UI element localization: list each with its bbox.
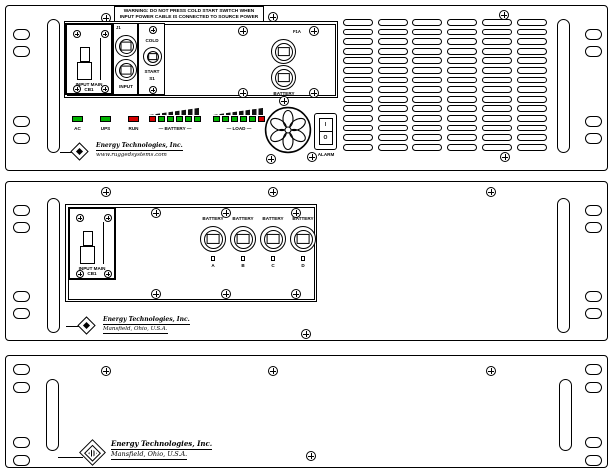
vent-slot — [378, 125, 408, 132]
vent-slot — [517, 144, 547, 151]
vent-slot — [412, 48, 442, 55]
vent-slot — [482, 115, 512, 122]
vent-slot — [517, 115, 547, 122]
eti-logo-icon — [77, 316, 95, 334]
vent-slot — [482, 96, 512, 103]
eti-logo-icon — [79, 439, 106, 466]
logo-company: Energy Technologies, Inc. — [103, 316, 190, 325]
mounting-slot — [13, 222, 30, 233]
cold-start-ref: S1 — [149, 76, 155, 81]
load-led — [231, 116, 238, 122]
vent-slot — [517, 105, 547, 112]
mounting-slot — [13, 29, 30, 40]
cold-start-word2: START — [145, 69, 160, 74]
screw-icon — [268, 366, 278, 376]
screw-icon — [268, 187, 278, 197]
vent-slot — [482, 67, 512, 74]
vent-slot — [343, 19, 373, 26]
cold-start-button[interactable] — [143, 47, 162, 66]
vent-slot — [447, 77, 477, 84]
load-led — [222, 116, 229, 122]
mounting-slot — [13, 364, 30, 375]
mounting-slot — [585, 29, 602, 40]
battery-label: BATTERY — [232, 216, 253, 221]
vent-slot — [378, 57, 408, 64]
vent-slot — [343, 38, 373, 45]
vent-slot — [447, 19, 477, 26]
vent-slot — [343, 96, 373, 103]
vent-slot — [412, 144, 442, 151]
vent-slot — [343, 86, 373, 93]
vent-slot — [482, 38, 512, 45]
rack-panel-bottom: Energy Technologies, Inc. Mansfield, Ohi… — [5, 355, 608, 468]
vent-slot — [517, 57, 547, 64]
battery-connector-icon — [200, 226, 226, 252]
vent-slot — [517, 29, 547, 36]
load-scale-icon — [213, 107, 265, 115]
mounting-slot — [585, 291, 602, 302]
mounting-slot — [585, 382, 602, 393]
screw-icon — [76, 214, 84, 222]
connector-ref: F1A — [293, 30, 301, 35]
screw-icon — [266, 154, 276, 164]
vent-slot — [378, 19, 408, 26]
battery-led — [149, 116, 156, 122]
battery-id: C — [271, 263, 274, 268]
vent-slot — [447, 86, 477, 93]
vent-slot — [412, 38, 442, 45]
led-label-run: RUN — [129, 126, 139, 131]
breaker-label: INPUT MAIN CB1 — [70, 266, 114, 276]
screw-icon — [238, 26, 248, 36]
vent-slot — [517, 38, 547, 45]
breaker-toggle-body[interactable] — [80, 246, 95, 264]
vent-slot — [482, 48, 512, 55]
mounting-slot — [585, 116, 602, 127]
mounting-slot — [585, 308, 602, 319]
breaker-toggle[interactable] — [83, 231, 93, 246]
vent-slot — [378, 105, 408, 112]
vent-slot — [447, 38, 477, 45]
vent-slot — [343, 134, 373, 141]
mounting-slot — [585, 222, 602, 233]
vent-slot — [378, 134, 408, 141]
vent-grille — [343, 19, 551, 153]
connector-pin-icon — [271, 256, 275, 261]
vent-slot — [412, 96, 442, 103]
screw-icon — [486, 366, 496, 376]
vent-slot — [378, 67, 408, 74]
vent-slot — [447, 67, 477, 74]
battery-id: D — [301, 263, 304, 268]
load-led — [249, 116, 256, 122]
input-connector-icon — [115, 59, 137, 81]
screw-icon — [301, 329, 311, 339]
vent-slot — [517, 96, 547, 103]
load-led — [213, 116, 220, 122]
vent-slot — [447, 134, 477, 141]
mounting-slot — [585, 455, 602, 466]
connector-pin-icon — [211, 256, 215, 261]
logo-company: Energy Technologies, Inc. — [111, 439, 212, 450]
rack-panel-middle: INPUT MAIN CB1 BATTERY BATTERY BATTERY B… — [5, 181, 608, 341]
rack-handle — [46, 379, 59, 451]
vent-slot — [378, 48, 408, 55]
rack-panel-top: WARNING: DO NOT PRESS COLD START SWITCH … — [5, 5, 608, 171]
screw-icon — [101, 366, 111, 376]
screw-icon — [149, 86, 157, 94]
vent-slot — [517, 19, 547, 26]
alarm-switch-label: ALARM — [318, 152, 335, 157]
mounting-slot — [585, 46, 602, 57]
battery-connector-icon — [271, 39, 296, 64]
vent-slot — [447, 115, 477, 122]
breaker-divider — [100, 38, 101, 80]
vent-slot — [412, 134, 442, 141]
mounting-slot — [13, 308, 30, 319]
battery-led — [194, 116, 201, 122]
led-ups — [100, 116, 111, 122]
screw-icon — [500, 152, 510, 162]
screw-icon — [309, 26, 319, 36]
rack-handle — [47, 19, 60, 153]
vent-slot — [447, 57, 477, 64]
vent-slot — [343, 57, 373, 64]
vent-slot — [378, 115, 408, 122]
breaker-label: INPUT MAIN CB1 — [67, 82, 111, 92]
screw-icon — [73, 30, 81, 38]
input-connector-icon — [115, 35, 137, 57]
vent-slot — [343, 105, 373, 112]
vent-slot — [378, 29, 408, 36]
vent-slot — [412, 125, 442, 132]
battery-label: BATTERY — [262, 216, 283, 221]
battery-id: B — [241, 263, 244, 268]
vent-slot — [378, 38, 408, 45]
load-led — [240, 116, 247, 122]
eti-logo-icon — [70, 142, 88, 160]
vent-slot — [482, 125, 512, 132]
screw-icon — [307, 152, 317, 162]
vent-slot — [412, 105, 442, 112]
mounting-slot — [585, 437, 602, 448]
vent-slot — [517, 77, 547, 84]
connector-pin-icon — [301, 256, 305, 261]
battery-group-label: — BATTERY — — [159, 126, 192, 131]
breaker-divider — [103, 222, 104, 264]
input-main-breaker: INPUT MAIN CB1 — [68, 207, 116, 280]
battery-led — [176, 116, 183, 122]
mounting-slot — [13, 382, 30, 393]
vent-slot — [517, 67, 547, 74]
battery-connector-icon — [230, 226, 256, 252]
vent-slot — [482, 19, 512, 26]
rack-handle — [47, 198, 60, 333]
alarm-switch[interactable]: I O — [314, 113, 337, 150]
screw-icon — [151, 208, 161, 218]
screw-icon — [309, 88, 319, 98]
vent-slot — [412, 67, 442, 74]
mounting-slot — [13, 291, 30, 302]
vent-slot — [343, 144, 373, 151]
screw-icon — [104, 214, 112, 222]
mounting-slot — [585, 364, 602, 375]
led-ac — [72, 116, 83, 122]
alarm-switch-rocker[interactable]: I O — [319, 118, 333, 145]
vent-slot — [517, 48, 547, 55]
cold-start-column: COLD START S1 — [138, 23, 165, 95]
battery-led — [158, 116, 165, 122]
vent-slot — [447, 125, 477, 132]
led-label-ac: AC — [74, 126, 81, 131]
vent-slot — [412, 57, 442, 64]
vent-slot — [343, 125, 373, 132]
vent-slot — [482, 29, 512, 36]
vent-slot — [517, 125, 547, 132]
battery-connector-icon — [271, 65, 296, 90]
vent-slot — [482, 105, 512, 112]
logo-rule — [58, 457, 83, 458]
breaker-toggle-body[interactable] — [77, 62, 92, 80]
battery-scale-icon — [149, 107, 201, 115]
logo-location: Mansfield, Ohio, U.S.A. — [103, 326, 168, 334]
mounting-slot — [13, 437, 30, 448]
input-connector-column: J1 INPUT — [113, 23, 138, 95]
vent-slot — [343, 77, 373, 84]
vent-slot — [412, 86, 442, 93]
screw-icon — [149, 26, 157, 34]
switch-on-mark: I — [320, 119, 332, 131]
cooling-fan-icon — [264, 106, 312, 154]
led-run — [128, 116, 139, 122]
vent-slot — [343, 115, 373, 122]
battery-label: BATTERY — [292, 216, 313, 221]
mounting-slot — [13, 46, 30, 57]
mounting-slot — [585, 205, 602, 216]
vent-slot — [378, 144, 408, 151]
battery-led — [185, 116, 192, 122]
mounting-slot — [13, 133, 30, 144]
rack-equipment-drawing: WARNING: DO NOT PRESS COLD START SWITCH … — [0, 0, 616, 473]
vent-slot — [343, 29, 373, 36]
connector-ref: J1 — [116, 26, 121, 31]
mounting-slot — [13, 116, 30, 127]
vent-slot — [378, 77, 408, 84]
battery-label: BATTERY — [202, 216, 223, 221]
vent-slot — [517, 86, 547, 93]
logo-location: Mansfield, Ohio, U.S.A. — [111, 450, 187, 460]
rack-handle — [559, 379, 572, 451]
vent-slot — [343, 67, 373, 74]
vent-slot — [412, 115, 442, 122]
screw-icon — [238, 88, 248, 98]
connector-pin-icon — [241, 256, 245, 261]
screw-icon — [101, 187, 111, 197]
mounting-slot — [13, 205, 30, 216]
vent-slot — [343, 48, 373, 55]
led-label-ups: UPS — [101, 126, 110, 131]
battery-connector-icon — [260, 226, 286, 252]
rack-handle — [557, 198, 570, 333]
screw-icon — [151, 289, 161, 299]
vent-slot — [482, 57, 512, 64]
screw-icon — [101, 30, 109, 38]
switch-off-mark: O — [320, 131, 332, 144]
cold-start-word1: COLD — [145, 38, 158, 43]
logo-website: www.ruggedsystems.com — [96, 152, 167, 158]
breaker-toggle[interactable] — [80, 47, 90, 62]
vent-slot — [447, 96, 477, 103]
vent-slot — [482, 86, 512, 93]
screw-icon — [486, 187, 496, 197]
battery-connector-icon — [290, 226, 316, 252]
vent-slot — [447, 48, 477, 55]
screw-icon — [279, 96, 289, 106]
vent-slot — [482, 134, 512, 141]
vent-slot — [378, 86, 408, 93]
battery-id: A — [211, 263, 214, 268]
vent-slot — [412, 19, 442, 26]
rack-handle — [557, 19, 570, 153]
screw-icon — [306, 451, 316, 461]
vent-slot — [412, 77, 442, 84]
screw-icon — [291, 289, 301, 299]
vent-slot — [517, 134, 547, 141]
vent-slot — [482, 77, 512, 84]
vent-slot — [412, 29, 442, 36]
vent-slot — [447, 105, 477, 112]
vent-slot — [447, 144, 477, 151]
load-group-label: — LOAD — — [227, 126, 252, 131]
mounting-slot — [585, 133, 602, 144]
logo-company: Energy Technologies, Inc. — [96, 142, 183, 151]
input-main-breaker: INPUT MAIN CB1 — [65, 23, 113, 95]
vent-slot — [482, 144, 512, 151]
battery-led — [167, 116, 174, 122]
screw-icon — [221, 289, 231, 299]
mounting-slot — [13, 455, 30, 466]
vent-slot — [447, 29, 477, 36]
vent-slot — [378, 96, 408, 103]
